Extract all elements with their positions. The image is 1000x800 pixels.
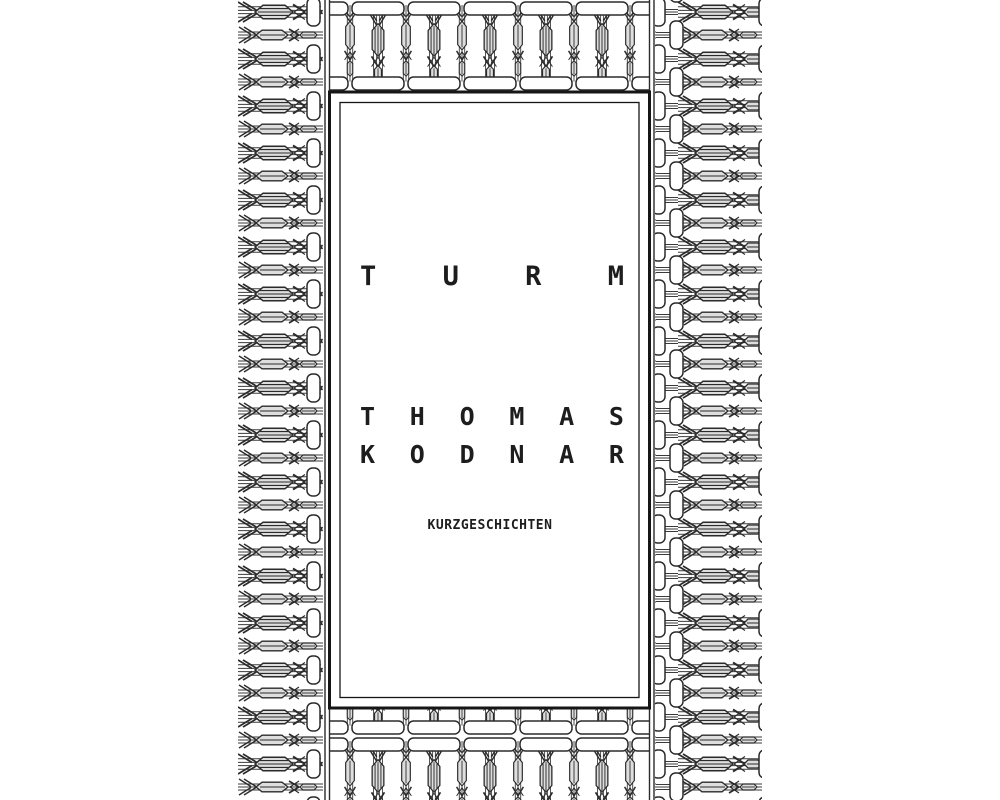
title-letter: U (443, 262, 459, 292)
panel-outer-border (330, 92, 650, 708)
author-letter: A (559, 402, 574, 432)
book-subtitle: KURZGESCHICHTEN (330, 517, 650, 535)
author-letter: H (410, 402, 425, 432)
ornament-band-right (655, 0, 762, 800)
author-letter: D (460, 440, 475, 470)
title-letter: R (525, 262, 541, 292)
ornament-border-pattern (238, 0, 762, 800)
author-letter: R (609, 440, 624, 470)
book-cover: T U R M T H O M A S K O D N A R KURZGESC… (238, 0, 762, 800)
title-letter: M (608, 262, 624, 292)
ornament-band-bottom (330, 708, 649, 800)
author-letter: N (509, 440, 524, 470)
author-letter: O (460, 402, 475, 432)
author-name-line-2: K O D N A R (360, 440, 624, 470)
ornament-band-top (330, 0, 649, 92)
author-letter: S (609, 402, 624, 432)
author-letter: A (559, 440, 574, 470)
title-letter: T (360, 262, 376, 292)
author-letter: M (509, 402, 524, 432)
author-name-line-1: T H O M A S (360, 402, 624, 432)
author-letter: K (360, 440, 375, 470)
author-letter: O (410, 440, 425, 470)
author-letter: T (360, 402, 375, 432)
ornament-band-left (238, 0, 323, 800)
book-title: T U R M (360, 262, 624, 292)
